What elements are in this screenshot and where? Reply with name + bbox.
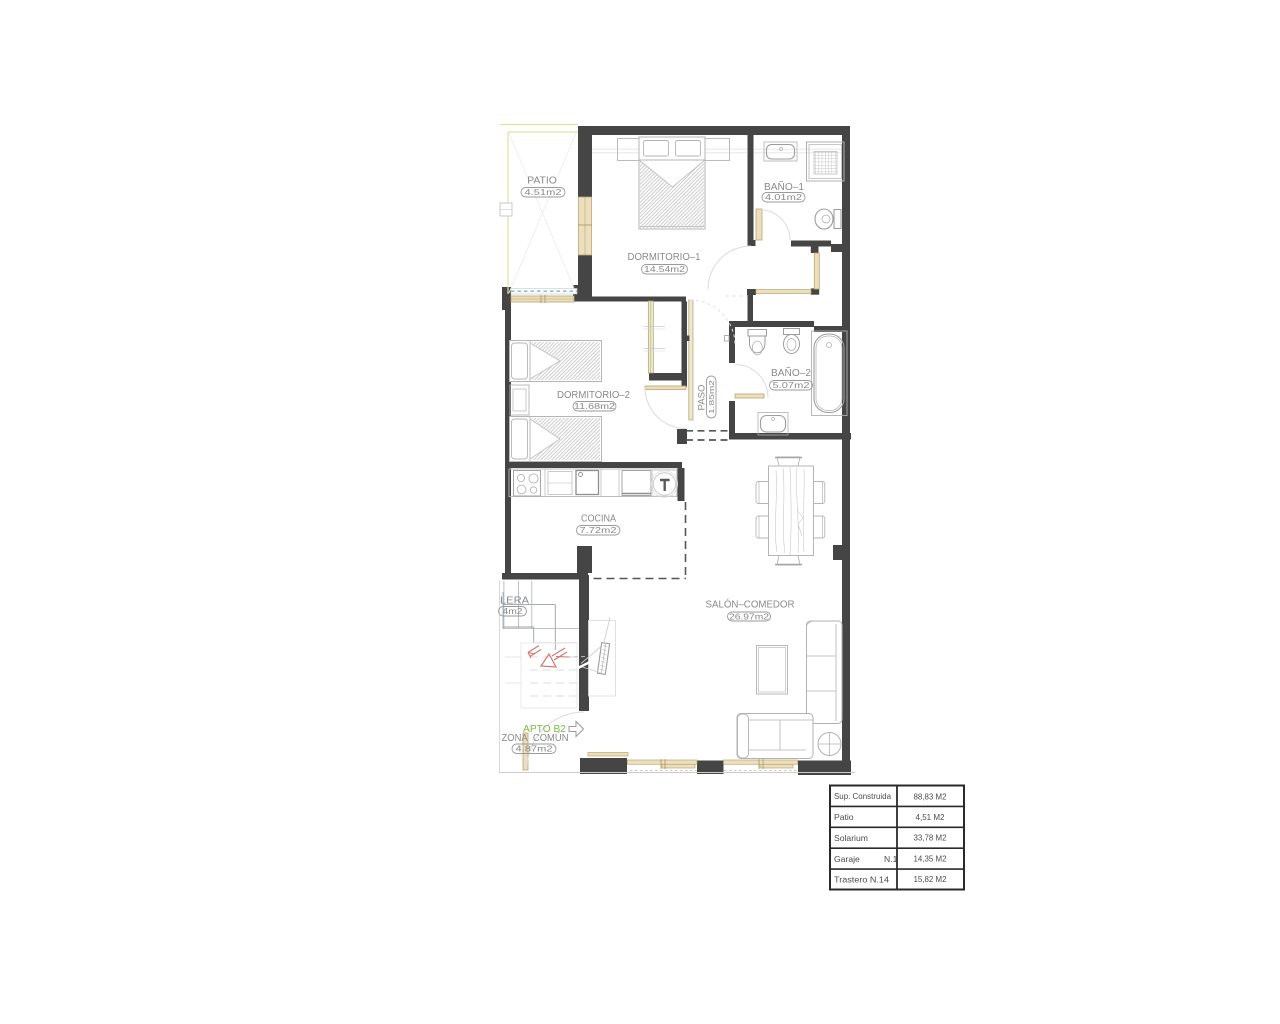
svg-text:BAÑO–2: BAÑO–2 xyxy=(771,366,811,379)
svg-text:BAÑO–1: BAÑO–1 xyxy=(764,180,804,193)
svg-text:Trastero N.14: Trastero N.14 xyxy=(834,875,889,885)
svg-text:33,78 M2: 33,78 M2 xyxy=(914,833,947,843)
svg-text:5.07m2: 5.07m2 xyxy=(773,380,810,390)
svg-text:88,83 M2: 88,83 M2 xyxy=(914,792,947,802)
svg-text:ZONA COMÚN: ZONA COMÚN xyxy=(502,731,569,744)
svg-text:4.87m2: 4.87m2 xyxy=(516,744,553,754)
svg-text:Solarium: Solarium xyxy=(834,833,868,843)
svg-text:4,51 M2: 4,51 M2 xyxy=(916,812,945,822)
svg-text:N.1: N.1 xyxy=(884,854,898,864)
svg-text:SALÓN–COMEDOR: SALÓN–COMEDOR xyxy=(706,598,795,611)
svg-text:PASO: PASO xyxy=(697,385,707,411)
svg-text:Patio: Patio xyxy=(834,812,854,822)
svg-text:COCINA: COCINA xyxy=(581,514,616,525)
svg-text:LERA: LERA xyxy=(500,596,529,607)
svg-text:PATIO: PATIO xyxy=(527,176,557,187)
svg-text:14.54m2: 14.54m2 xyxy=(644,264,685,274)
svg-text:Sup. Construida: Sup. Construida xyxy=(834,791,891,801)
svg-text:DORMITORIO–2: DORMITORIO–2 xyxy=(557,390,630,401)
svg-text:1.85m2: 1.85m2 xyxy=(707,380,716,414)
svg-text:15,82 M2: 15,82 M2 xyxy=(914,874,947,884)
svg-text:11.68m2: 11.68m2 xyxy=(574,401,615,411)
svg-text:4m2: 4m2 xyxy=(503,606,523,616)
svg-text:4.01m2: 4.01m2 xyxy=(765,192,802,202)
svg-text:DORMITORIO–1: DORMITORIO–1 xyxy=(628,252,701,263)
svg-text:7.72m2: 7.72m2 xyxy=(580,525,617,535)
svg-text:4.51m2: 4.51m2 xyxy=(525,187,562,197)
svg-text:Garaje: Garaje xyxy=(834,854,860,864)
svg-text:26.97m2: 26.97m2 xyxy=(729,611,769,621)
svg-text:14,35 M2: 14,35 M2 xyxy=(914,853,947,863)
